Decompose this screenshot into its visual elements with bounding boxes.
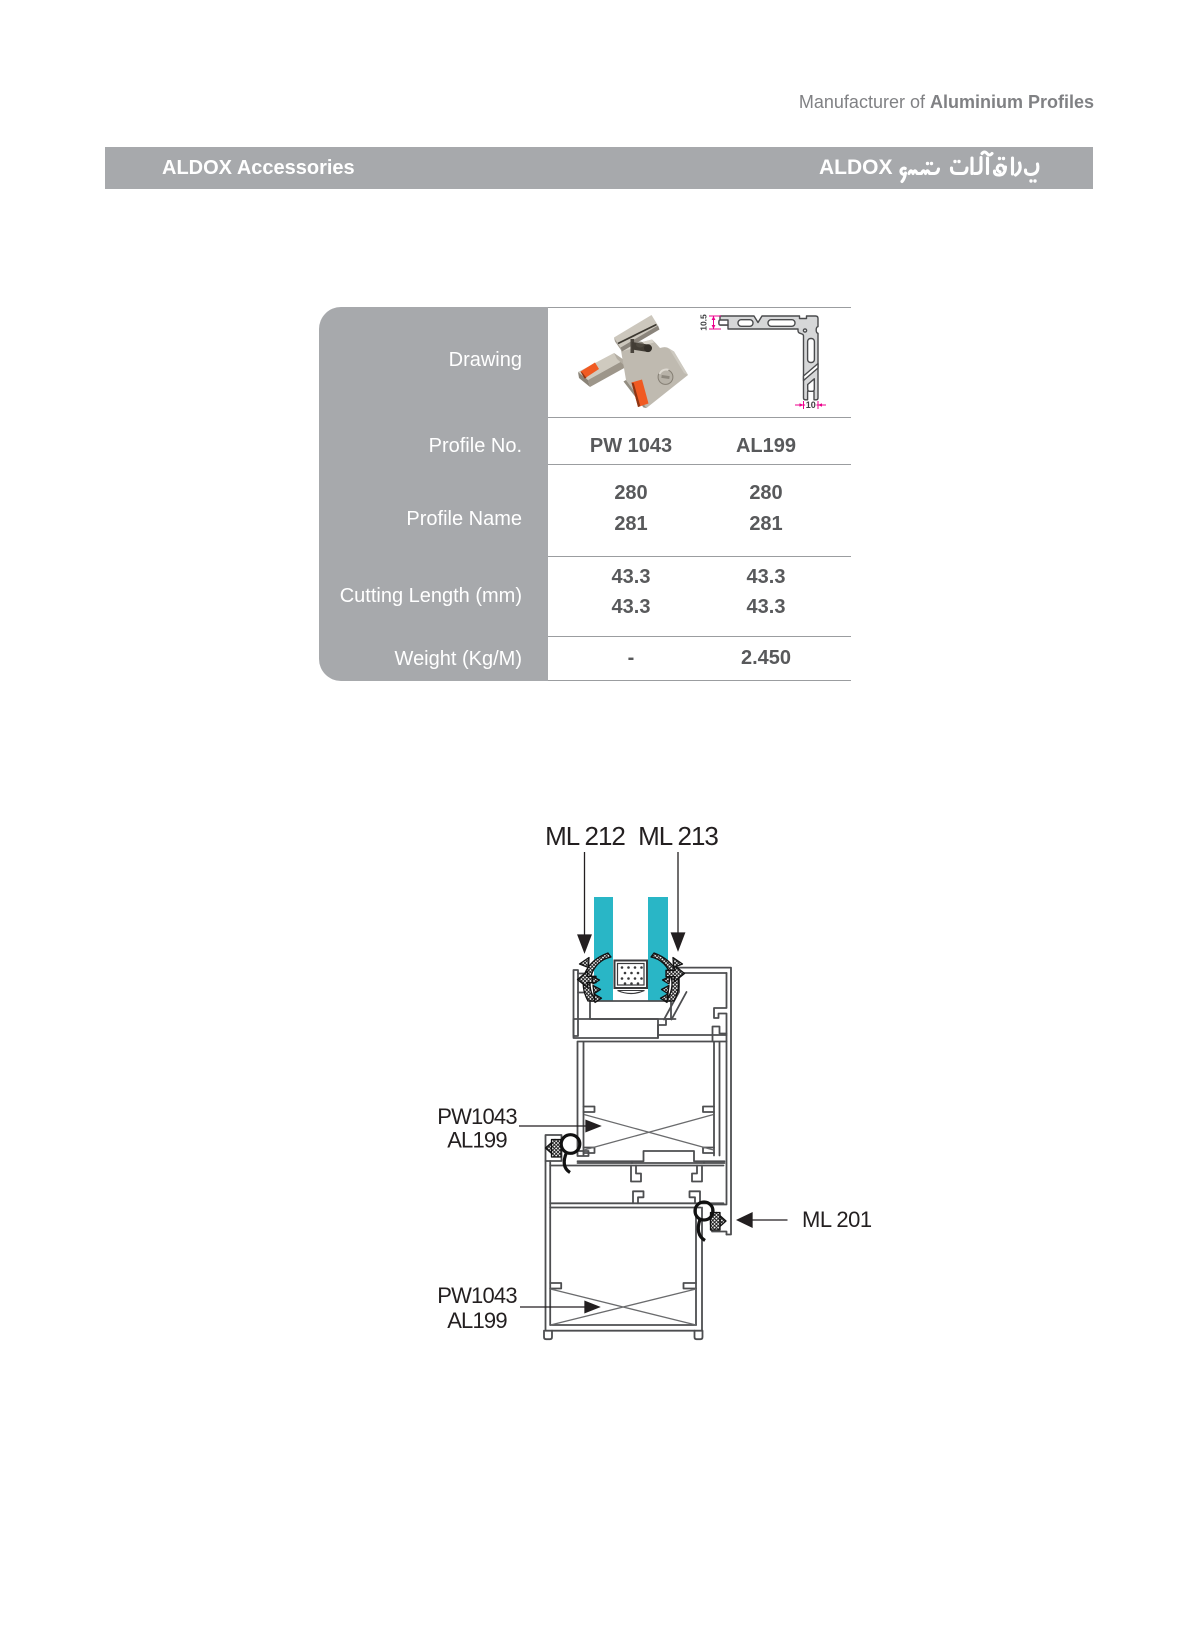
svg-text:PW1043: PW1043 (437, 1104, 517, 1129)
svg-text:PW1043: PW1043 (437, 1283, 517, 1308)
svg-text:AL199: AL199 (447, 1128, 507, 1153)
svg-text:ML 201: ML 201 (802, 1207, 872, 1232)
svg-text:ML 213: ML 213 (638, 821, 718, 851)
svg-text:AL199: AL199 (447, 1308, 507, 1333)
svg-text:ML 212: ML 212 (545, 821, 625, 851)
